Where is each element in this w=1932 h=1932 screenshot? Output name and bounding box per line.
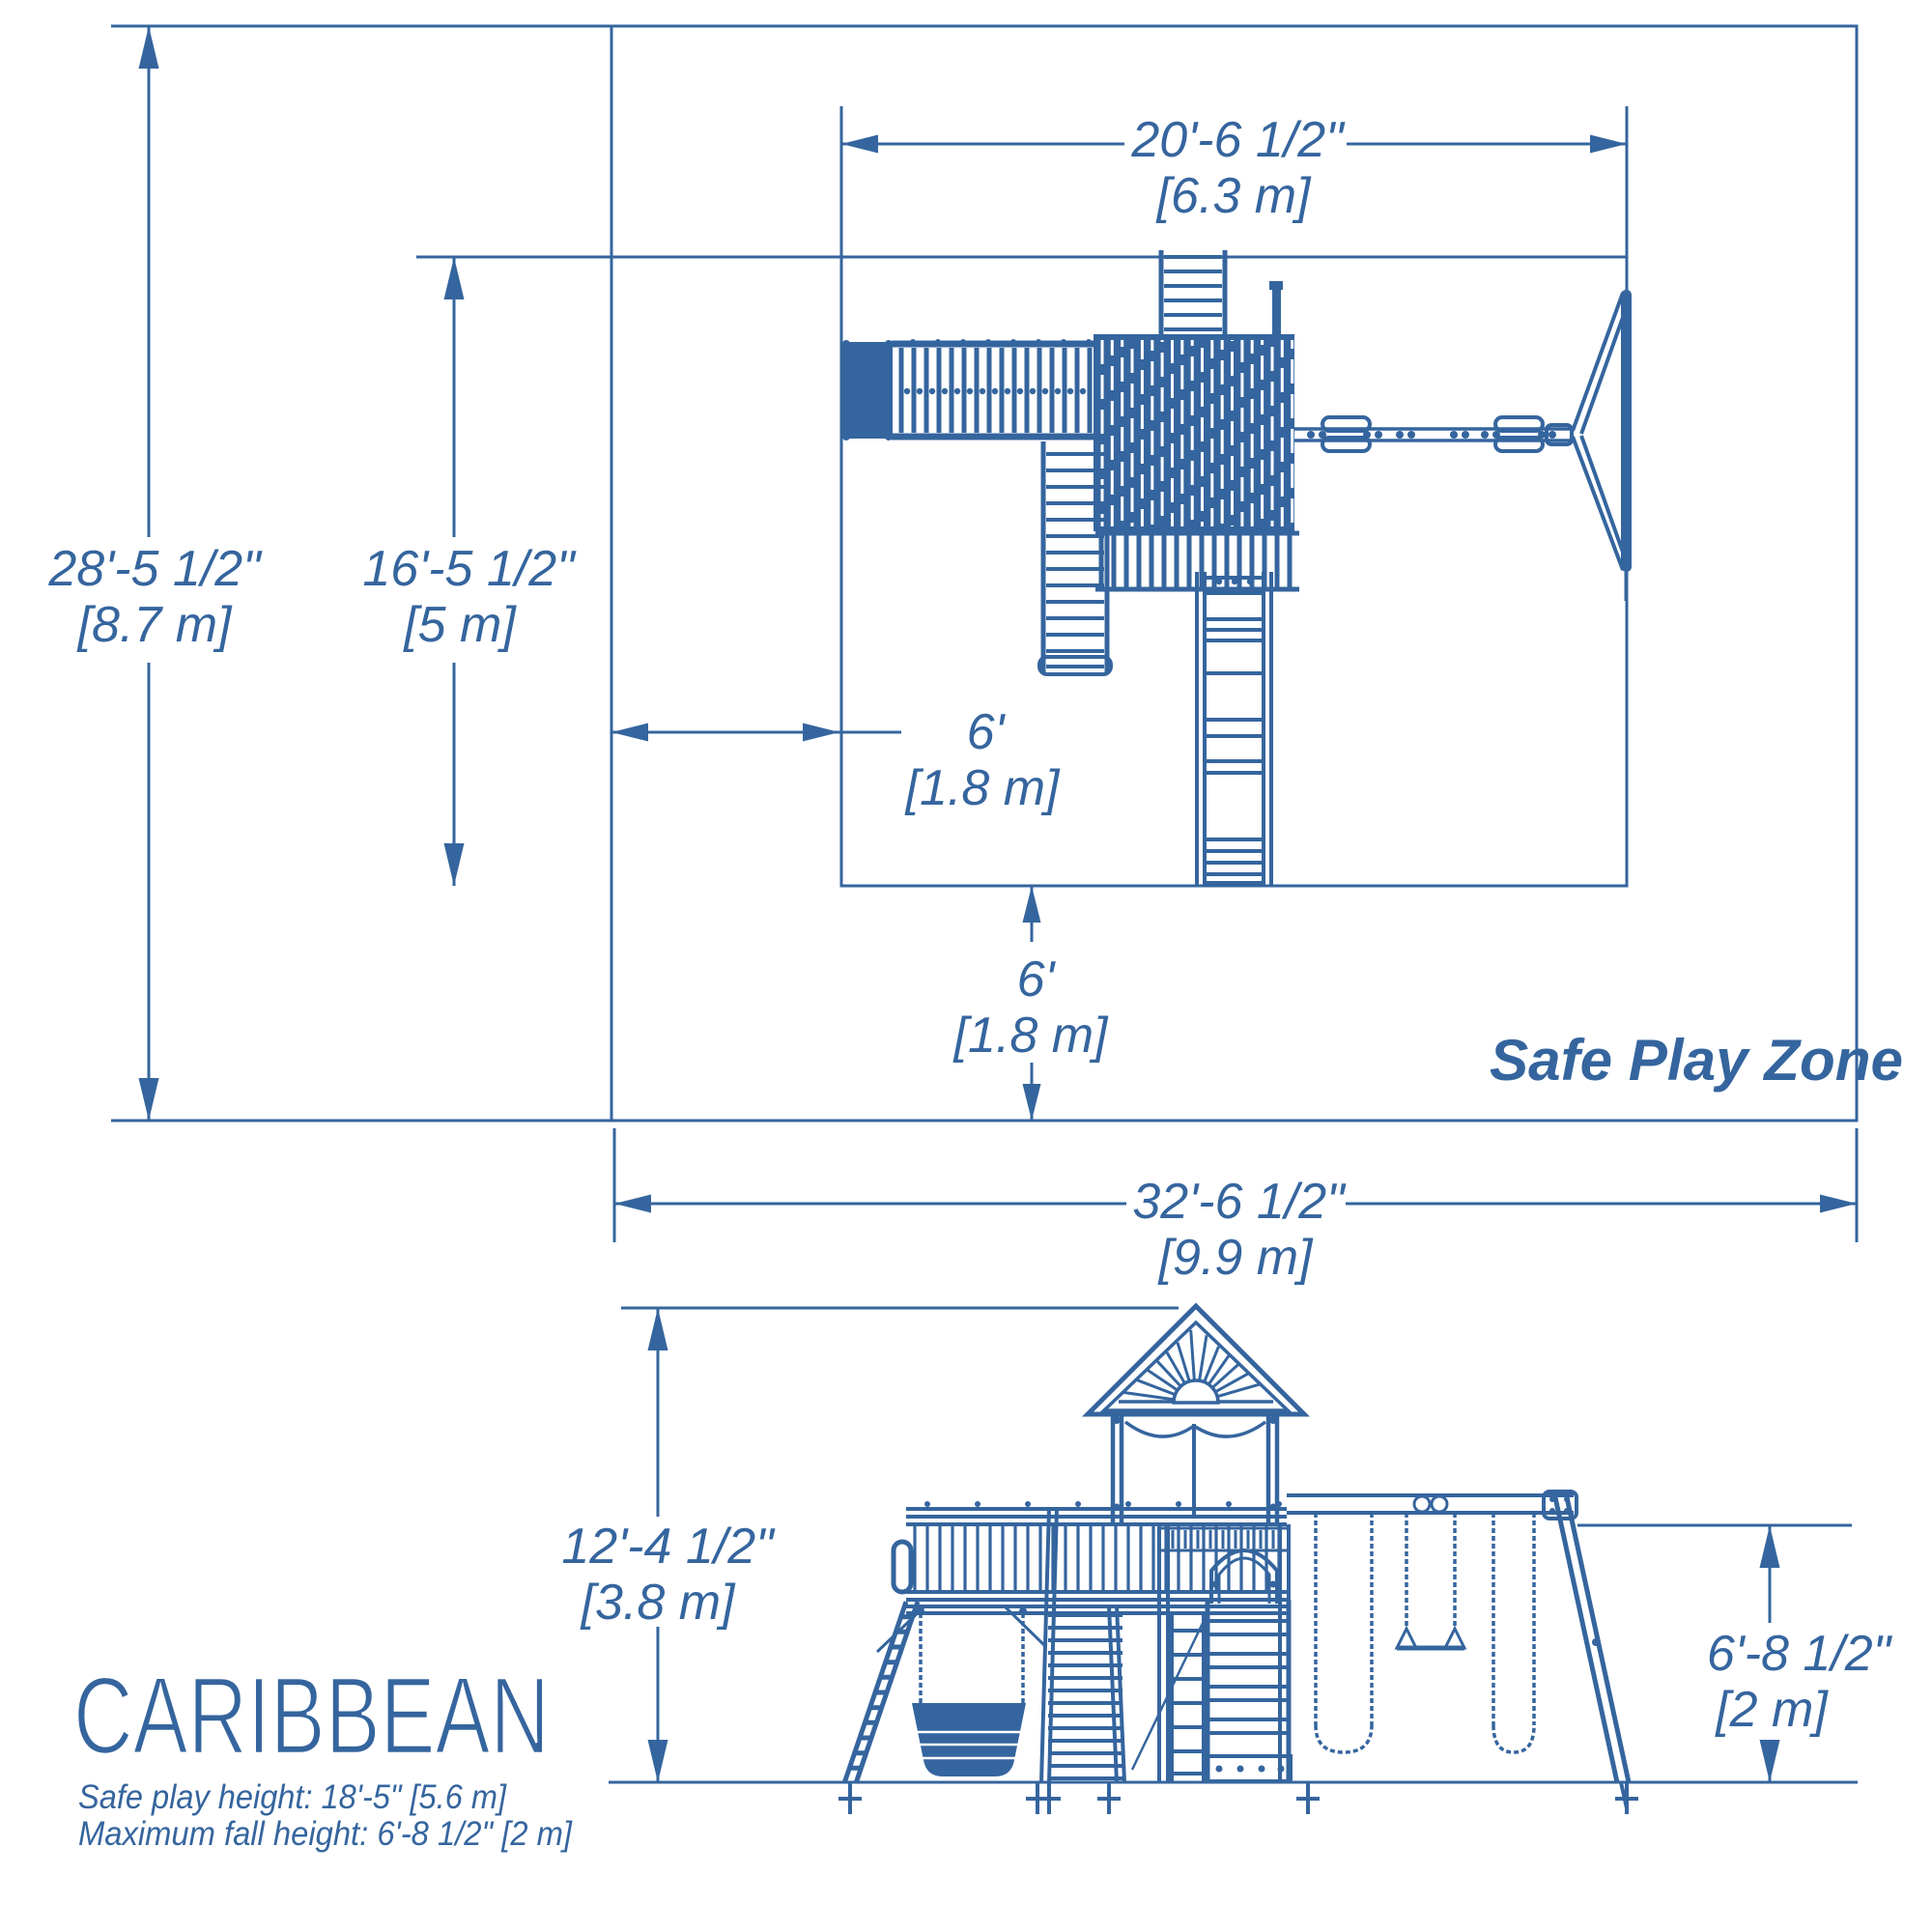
svg-text:6': 6' bbox=[967, 704, 1007, 760]
svg-text:[9.9 m]: [9.9 m] bbox=[1158, 1230, 1314, 1286]
svg-text:[1.8 m]: [1.8 m] bbox=[905, 760, 1061, 816]
svg-text:[5 m]: [5 m] bbox=[403, 597, 517, 653]
svg-text:28'-5 1/2": 28'-5 1/2" bbox=[47, 541, 263, 597]
svg-text:12'-4 1/2": 12'-4 1/2" bbox=[561, 1519, 776, 1575]
svg-text:6'-8 1/2": 6'-8 1/2" bbox=[1707, 1626, 1893, 1682]
svg-text:[2 m]: [2 m] bbox=[1715, 1682, 1829, 1738]
svg-text:CARIBBEAN: CARIBBEAN bbox=[73, 1655, 550, 1776]
svg-text:Safe play height: 18'-5" [5.6: Safe play height: 18'-5" [5.6 m] bbox=[78, 1778, 507, 1816]
svg-text:32'-6 1/2": 32'-6 1/2" bbox=[1132, 1174, 1347, 1230]
svg-text:[6.3 m]: [6.3 m] bbox=[1156, 168, 1312, 224]
svg-text:[3.8 m]: [3.8 m] bbox=[581, 1575, 736, 1631]
svg-text:16'-5 1/2": 16'-5 1/2" bbox=[362, 541, 577, 597]
svg-text:[8.7 m]: [8.7 m] bbox=[77, 597, 233, 653]
svg-text:[1.8 m]: [1.8 m] bbox=[953, 1008, 1109, 1064]
svg-text:20'-6 1/2": 20'-6 1/2" bbox=[1130, 112, 1346, 168]
svg-text:6': 6' bbox=[1017, 952, 1057, 1008]
svg-text:Safe Play Zone: Safe Play Zone bbox=[1490, 1028, 1903, 1093]
svg-text:Maximum fall height: 6'-8 1/2": Maximum fall height: 6'-8 1/2" [2 m] bbox=[78, 1815, 573, 1853]
